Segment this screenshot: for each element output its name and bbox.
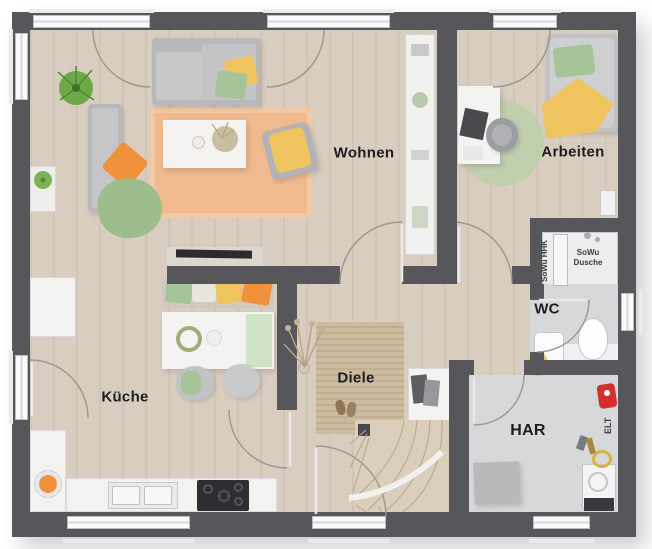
window-sill (529, 539, 594, 543)
wall-har-left (449, 360, 469, 512)
sofa-cushion (156, 52, 202, 100)
papers (463, 146, 483, 160)
shelf-item (412, 206, 428, 228)
dark-panel (584, 498, 614, 511)
room-label-wc: WC (534, 301, 560, 318)
room-label-wohnen: Wohnen (334, 145, 395, 162)
table-runner (246, 314, 272, 367)
storage-box (473, 461, 520, 505)
dining-chair (222, 364, 260, 398)
kitchen-tall-cabinet (30, 277, 76, 337)
red-device (596, 383, 617, 409)
terrace-door-kueche (15, 355, 28, 420)
burner (234, 483, 243, 492)
window-kueche-bottom (67, 516, 190, 529)
room-label-kueche: Küche (101, 389, 148, 406)
wall-wc-bottom (524, 360, 618, 375)
shower-fixture (584, 232, 591, 239)
appliance-door (588, 472, 608, 492)
shower-label-line2: Dusche (562, 258, 614, 268)
daybed-pillow (553, 44, 596, 78)
radiator-label: SoWu HHK (540, 233, 552, 289)
window-wohnen-left (15, 33, 28, 100)
picture-frame (423, 379, 440, 406)
radiator (600, 190, 616, 216)
plate (206, 330, 222, 346)
elt-label: ELT (603, 408, 617, 444)
window-wohnen-top-left (33, 15, 150, 28)
room-label-arbeiten: Arbeiten (541, 144, 604, 161)
table-wreath (176, 326, 202, 352)
window-sill (9, 29, 13, 104)
tv (176, 249, 252, 258)
window-sill (308, 539, 390, 543)
floor-plan: Wohnen Arbeiten Küche Diele WC HAR SoWu … (0, 0, 652, 549)
wall-har-top (449, 360, 474, 375)
shelf-item (412, 92, 428, 108)
window-sill (639, 289, 643, 335)
fruit (39, 475, 57, 493)
chair-cushion (181, 371, 201, 395)
window-arbeiten-top (493, 15, 557, 28)
room-label-diele: Diele (337, 370, 374, 387)
wall-kueche-diele (277, 266, 297, 410)
burner (203, 484, 213, 494)
wall-wohnen-kueche (167, 266, 340, 284)
window-sill (9, 351, 13, 424)
newel-post (358, 424, 370, 436)
burner (218, 490, 230, 502)
burner (234, 497, 243, 506)
shower-fixture (595, 237, 600, 242)
window-sill (29, 9, 154, 13)
sink-basin (144, 486, 172, 505)
wall-shower-top (530, 218, 618, 232)
window-sill (63, 539, 194, 543)
wall-corridor-b (512, 266, 530, 284)
window-wohnen-top-right (267, 15, 390, 28)
wall-right (618, 12, 636, 537)
plant-pot (298, 362, 310, 374)
shower-label: SoWu Dusche (562, 248, 614, 267)
shelf-item (411, 44, 429, 56)
shower-label-line1: SoWu (562, 248, 614, 258)
side-table (30, 166, 56, 212)
shelf-item (411, 150, 429, 160)
wall-wohnen-arbeiten (437, 30, 457, 284)
room-label-har: HAR (510, 422, 546, 440)
entrance-door (312, 516, 386, 529)
toilet (578, 318, 608, 360)
table-plant (212, 126, 238, 152)
wall-corridor-a (402, 266, 457, 284)
red-device-dot (604, 390, 610, 396)
window-sill (489, 9, 561, 13)
pillow-green (214, 70, 247, 100)
hose-coil (592, 450, 612, 468)
window-har-bottom (533, 516, 590, 529)
office-chair-seat (492, 124, 512, 146)
window-wc-right (621, 293, 634, 331)
cup (192, 136, 205, 149)
window-sill (263, 9, 394, 13)
sink-basin (112, 486, 140, 505)
